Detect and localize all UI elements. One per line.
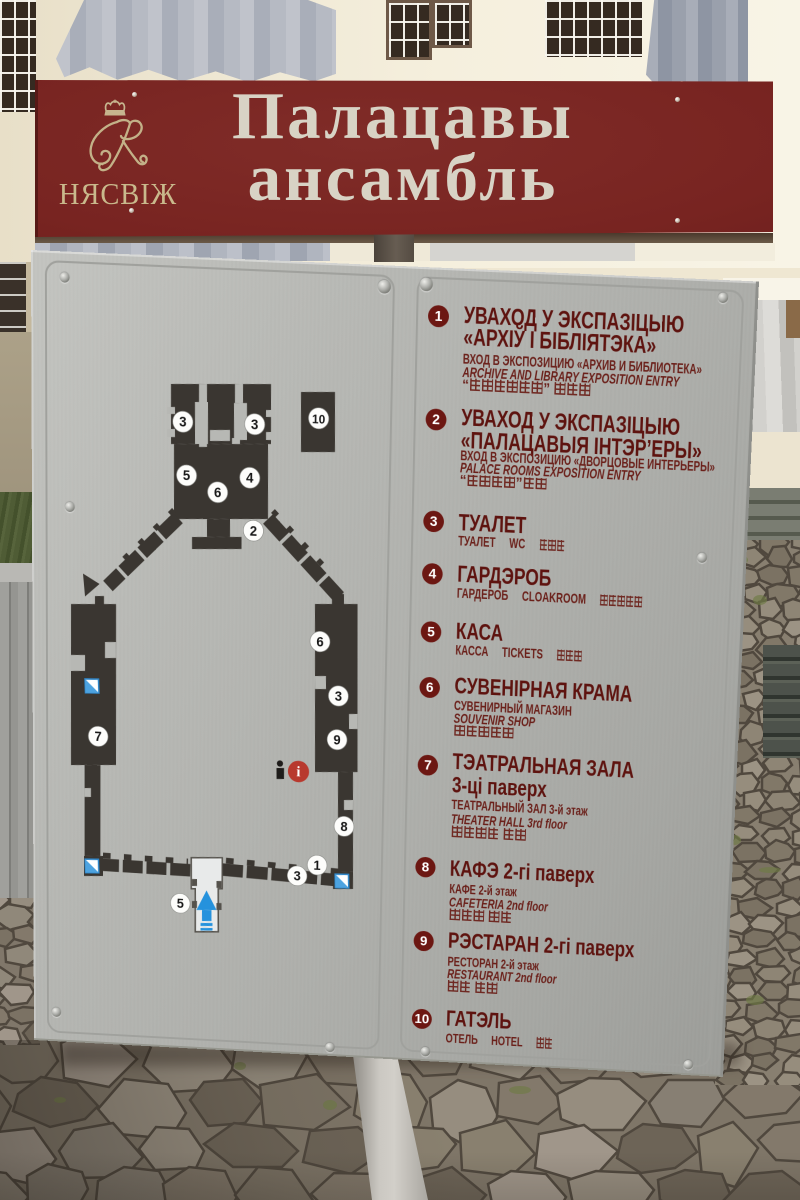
svg-text:6: 6 <box>316 634 324 650</box>
svg-text:3: 3 <box>179 414 187 430</box>
svg-text:3: 3 <box>251 416 259 432</box>
svg-text:7: 7 <box>95 728 102 744</box>
svg-text:9: 9 <box>333 732 341 748</box>
svg-text:1: 1 <box>313 857 321 872</box>
svg-text:3: 3 <box>293 868 301 883</box>
svg-text:5: 5 <box>177 896 185 911</box>
svg-text:2: 2 <box>250 523 258 539</box>
svg-text:6: 6 <box>214 484 222 500</box>
svg-text:4: 4 <box>246 470 254 486</box>
svg-text:5: 5 <box>183 467 191 483</box>
svg-text:8: 8 <box>340 819 348 835</box>
svg-text:10: 10 <box>312 412 326 427</box>
svg-text:3: 3 <box>335 688 343 704</box>
